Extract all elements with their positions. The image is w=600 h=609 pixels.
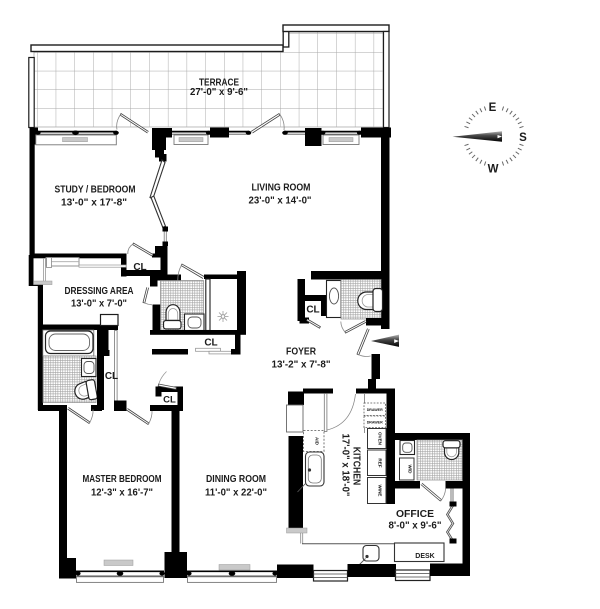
- svg-text:13'-2" x 7'-8": 13'-2" x 7'-8": [272, 360, 331, 371]
- svg-text:CL: CL: [133, 262, 146, 273]
- svg-text:MASTER BEDROOM: MASTER BEDROOM: [83, 473, 162, 485]
- svg-text:OVEN: OVEN: [378, 432, 383, 446]
- svg-text:DRESSING AREA: DRESSING AREA: [65, 285, 134, 297]
- svg-text:KITCHEN: KITCHEN: [351, 447, 363, 486]
- svg-text:WINE: WINE: [378, 485, 383, 497]
- svg-text:AID: AID: [315, 437, 320, 446]
- svg-text:13'-0" x 7'-0": 13'-0" x 7'-0": [71, 299, 127, 310]
- svg-text:E: E: [489, 102, 497, 114]
- svg-text:11'-0" x 22'-0": 11'-0" x 22'-0": [205, 488, 267, 499]
- svg-text:S: S: [519, 132, 527, 144]
- svg-text:OFFICE: OFFICE: [396, 508, 434, 520]
- svg-text:STUDY / BEDROOM: STUDY / BEDROOM: [55, 184, 136, 196]
- svg-text:FOYER: FOYER: [286, 346, 316, 358]
- svg-text:DRAWER: DRAWER: [367, 421, 383, 425]
- svg-text:CL: CL: [163, 395, 176, 406]
- svg-text:CL: CL: [306, 305, 319, 316]
- svg-text:23'-0" x 14'-0": 23'-0" x 14'-0": [249, 196, 312, 207]
- svg-text:LIVING ROOM: LIVING ROOM: [252, 182, 311, 194]
- svg-text:REF: REF: [378, 458, 383, 467]
- svg-text:W/D: W/D: [407, 465, 412, 475]
- svg-text:13'-0" x 17'-8": 13'-0" x 17'-8": [61, 198, 127, 209]
- svg-text:DRAWER: DRAWER: [367, 408, 383, 412]
- svg-text:CL: CL: [105, 371, 118, 382]
- svg-text:CL: CL: [204, 338, 217, 349]
- svg-text:8'-0" x 9'-6": 8'-0" x 9'-6": [389, 521, 442, 532]
- svg-text:W: W: [488, 164, 499, 176]
- svg-text:27'-0" x 9'-6": 27'-0" x 9'-6": [190, 87, 248, 98]
- svg-text:17'-0" x 18'-0": 17'-0" x 18'-0": [340, 434, 351, 497]
- svg-text:DINING ROOM: DINING ROOM: [206, 473, 266, 485]
- svg-text:12'-3" x 16'-7": 12'-3" x 16'-7": [91, 488, 153, 499]
- svg-text:DESK: DESK: [415, 553, 434, 560]
